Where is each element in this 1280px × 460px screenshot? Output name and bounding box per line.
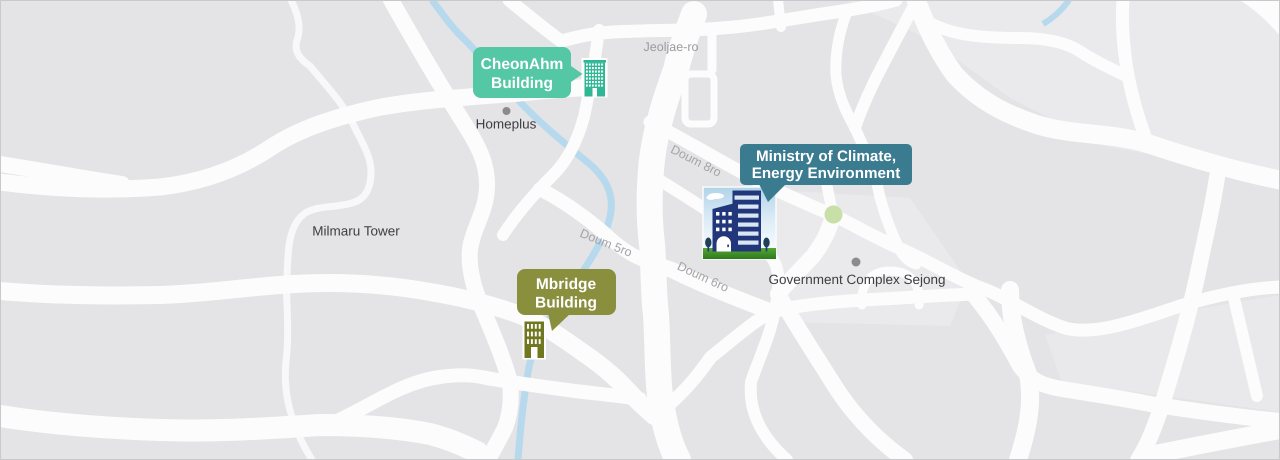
svg-text:Milmaru Tower: Milmaru Tower bbox=[312, 224, 400, 239]
svg-text:Mbridge: Mbridge bbox=[536, 276, 597, 293]
svg-text:Ministry of Climate,: Ministry of Climate, bbox=[756, 148, 896, 165]
svg-text:Building: Building bbox=[535, 295, 597, 312]
svg-text:Government Complex Sejong: Government Complex Sejong bbox=[768, 272, 945, 287]
svg-text:Homeplus: Homeplus bbox=[476, 117, 537, 132]
svg-text:Jeoljae-ro: Jeoljae-ro bbox=[644, 40, 699, 54]
svg-text:CheonAhm: CheonAhm bbox=[481, 56, 564, 73]
svg-text:Energy Environment: Energy Environment bbox=[752, 165, 901, 182]
svg-text:Building: Building bbox=[491, 75, 553, 92]
